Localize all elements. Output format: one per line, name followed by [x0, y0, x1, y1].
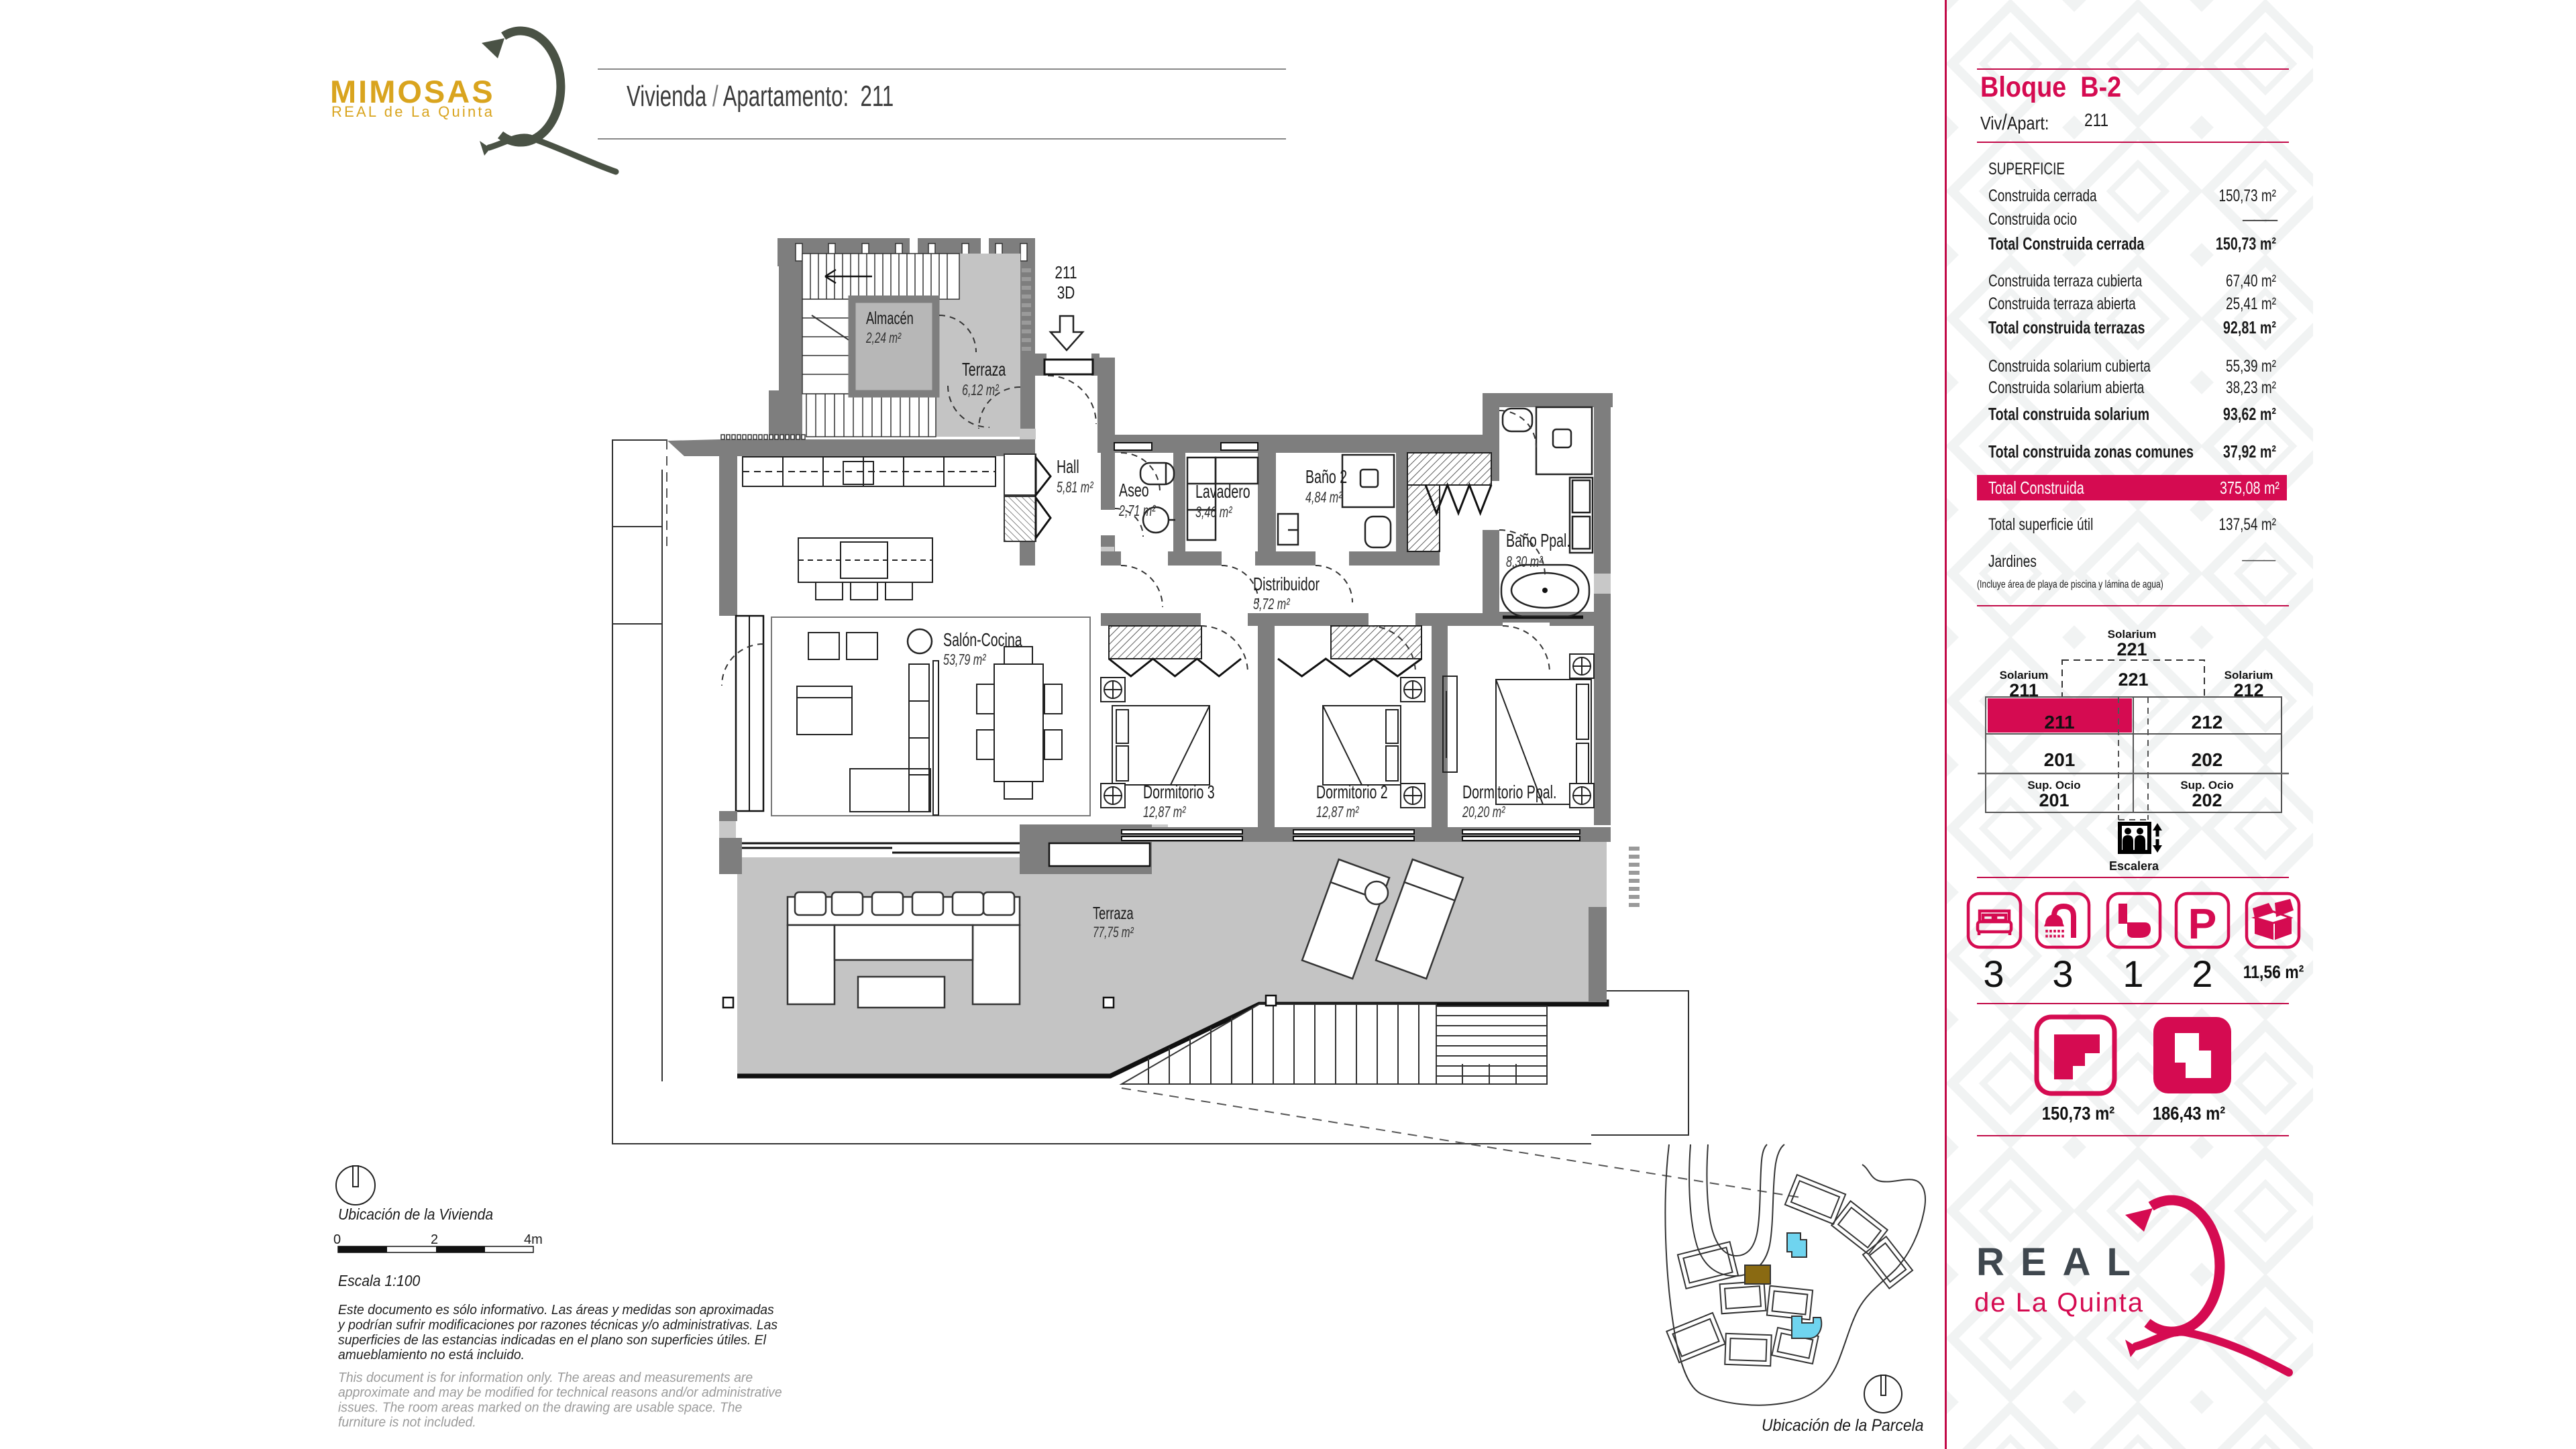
svg-text:186,43 m²: 186,43 m² [2153, 1102, 2226, 1124]
svg-text:3: 3 [1983, 953, 2004, 995]
svg-text:P: P [2188, 900, 2217, 948]
svg-text:2: 2 [2192, 953, 2212, 995]
svg-text:211: 211 [2044, 712, 2074, 733]
svg-text:77,75 m²: 77,75 m² [1093, 924, 1134, 941]
svg-text:5,72 m²: 5,72 m² [1253, 596, 1291, 612]
svg-text:20,20 m²: 20,20 m² [1462, 804, 1505, 820]
svg-text:221: 221 [2118, 669, 2148, 690]
svg-text:6,12 m²: 6,12 m² [962, 382, 1000, 398]
svg-text:Dormitorio Ppal.: Dormitorio Ppal. [1462, 782, 1556, 803]
svg-text:8,30 m²: 8,30 m² [1506, 553, 1544, 570]
svg-text:12,87 m²: 12,87 m² [1316, 804, 1360, 820]
svg-text:3: 3 [2052, 953, 2073, 995]
svg-text:This document is for informati: This document is for information only. T… [338, 1371, 753, 1385]
svg-text:0: 0 [333, 1232, 341, 1247]
svg-text:Ubicación de la Vivienda: Ubicación de la Vivienda [338, 1205, 493, 1223]
svg-text:202: 202 [2192, 749, 2223, 770]
svg-text:Dormitorio 2: Dormitorio 2 [1316, 782, 1388, 803]
svg-text:Este documento es sólo informa: Este documento es sólo informativo. Las … [338, 1303, 774, 1318]
svg-text:Lavadero: Lavadero [1195, 482, 1250, 502]
svg-text:approximate and may be modifie: approximate and may be modified for tech… [338, 1385, 782, 1400]
svg-text:2: 2 [431, 1232, 438, 1247]
svg-text:Hall: Hall [1057, 457, 1079, 478]
svg-text:1: 1 [2123, 953, 2143, 995]
svg-text:2,24 m²: 2,24 m² [865, 330, 902, 346]
svg-text:furniture is not included.: furniture is not included. [338, 1415, 476, 1430]
svg-text:Terraza: Terraza [1093, 904, 1134, 923]
svg-text:221: 221 [2116, 639, 2147, 659]
svg-text:5,81 m²: 5,81 m² [1057, 479, 1094, 496]
svg-text:Salón-Cocina: Salón-Cocina [943, 630, 1022, 651]
svg-text:202: 202 [2192, 790, 2222, 810]
svg-text:4,84 m²: 4,84 m² [1305, 489, 1343, 506]
svg-text:Baño Ppal.: Baño Ppal. [1506, 531, 1570, 551]
svg-text:4m: 4m [524, 1232, 543, 1247]
svg-text:Distribuidor: Distribuidor [1253, 574, 1320, 595]
svg-text:amueblamiento no está incluido: amueblamiento no está incluido. [338, 1348, 525, 1362]
svg-text:Escala 1:100: Escala 1:100 [338, 1272, 421, 1289]
svg-text:211: 211 [1055, 263, 1077, 282]
svg-text:12,87 m²: 12,87 m² [1143, 804, 1187, 820]
svg-text:Terraza: Terraza [962, 360, 1006, 380]
svg-text:Aseo: Aseo [1119, 480, 1149, 501]
svg-text:Escalera: Escalera [2109, 859, 2159, 873]
svg-text:150,73 m²: 150,73 m² [2042, 1102, 2115, 1124]
svg-text:Ubicación de la Parcela: Ubicación de la Parcela [1762, 1416, 1924, 1435]
svg-text:y podrían sufrir modificacione: y podrían sufrir modificaciones por razo… [337, 1318, 777, 1332]
svg-text:53,79 m²: 53,79 m² [943, 651, 987, 668]
svg-text:Baño 2: Baño 2 [1305, 467, 1347, 488]
svg-text:3,46 m²: 3,46 m² [1195, 504, 1233, 521]
svg-text:201: 201 [2044, 749, 2076, 770]
svg-text:Dormitorio 3: Dormitorio 3 [1143, 782, 1215, 803]
svg-text:201: 201 [2039, 790, 2069, 810]
svg-text:issues. The room areas marked: issues. The room areas marked on the dra… [338, 1400, 742, 1415]
svg-text:2,71 m²: 2,71 m² [1118, 502, 1156, 519]
svg-text:212: 212 [2192, 712, 2223, 733]
svg-text:superficies de las estancias i: superficies de las estancias indicadas e… [338, 1333, 767, 1348]
svg-text:3D: 3D [1057, 283, 1075, 303]
svg-text:Almacén: Almacén [866, 309, 914, 328]
svg-text:11,56 m²: 11,56 m² [2243, 962, 2304, 982]
